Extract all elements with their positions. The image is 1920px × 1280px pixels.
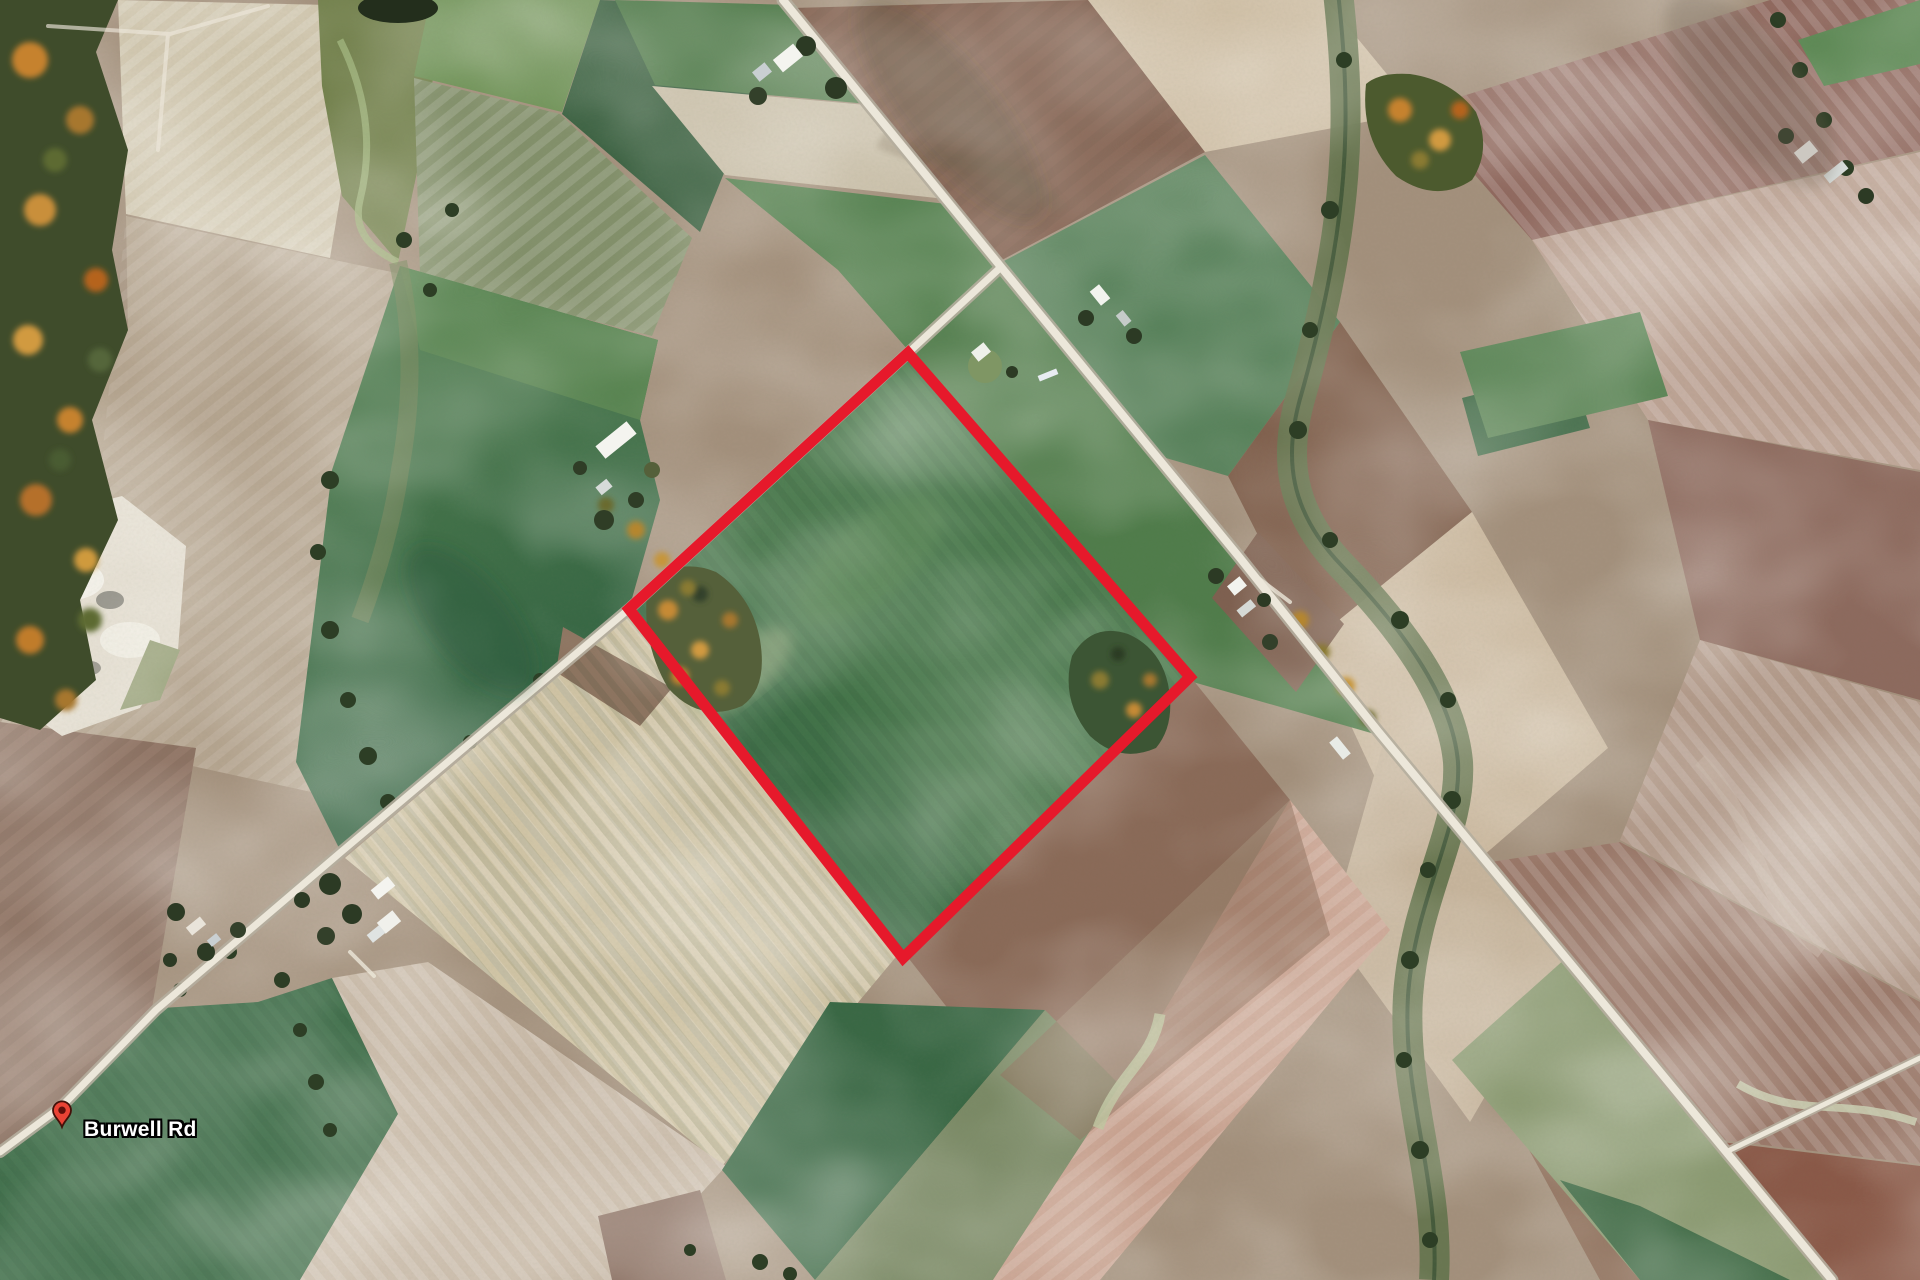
pin-label: Burwell Rd xyxy=(84,1118,197,1142)
film-grain-overlay xyxy=(0,0,1920,1280)
satellite-map[interactable]: Burwell Rd xyxy=(0,0,1920,1280)
satellite-imagery xyxy=(0,0,1920,1280)
